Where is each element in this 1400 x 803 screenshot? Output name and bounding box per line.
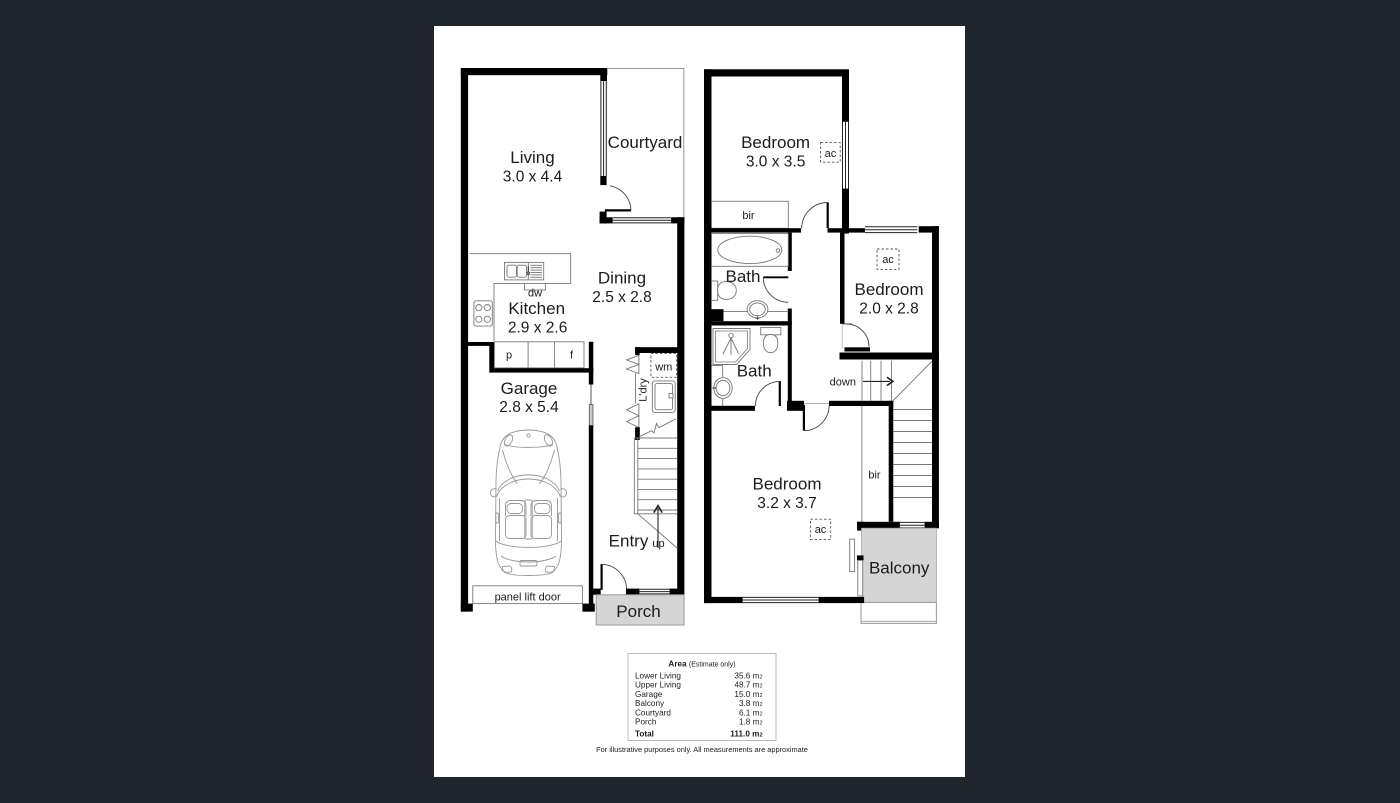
svg-text:L'dry: L'dry — [638, 378, 650, 402]
svg-text:6.1 m2: 6.1 m2 — [739, 708, 763, 717]
svg-text:Kitchen: Kitchen — [508, 299, 565, 318]
svg-text:Lower Living: Lower Living — [635, 672, 681, 681]
svg-text:15.0 m2: 15.0 m2 — [734, 690, 762, 699]
svg-text:2.8 x 5.4: 2.8 x 5.4 — [499, 399, 559, 416]
svg-text:Bedroom: Bedroom — [855, 280, 924, 299]
svg-text:bir: bir — [868, 470, 881, 482]
svg-text:panel lift door: panel lift door — [495, 592, 561, 604]
svg-text:2.5 x 2.8: 2.5 x 2.8 — [592, 289, 651, 306]
svg-text:Balcony: Balcony — [869, 559, 930, 578]
svg-text:2.9 x 2.6: 2.9 x 2.6 — [508, 320, 567, 337]
svg-text:Bedroom: Bedroom — [753, 475, 822, 494]
svg-text:Upper Living: Upper Living — [635, 681, 681, 690]
svg-text:Dining: Dining — [598, 269, 646, 288]
svg-text:For illustrative purposes only: For illustrative purposes only. All meas… — [596, 745, 808, 754]
svg-text:Garage: Garage — [501, 379, 558, 398]
svg-text:48.7 m2: 48.7 m2 — [734, 681, 762, 690]
svg-text:Balcony: Balcony — [635, 699, 665, 708]
svg-text:Garage: Garage — [635, 690, 663, 699]
svg-text:Courtyard: Courtyard — [608, 133, 683, 152]
svg-text:down: down — [830, 376, 856, 388]
svg-text:3.2 x 3.7: 3.2 x 3.7 — [757, 495, 816, 512]
svg-text:Total: Total — [635, 729, 654, 738]
svg-text:dw: dw — [528, 288, 542, 300]
svg-text:Courtyard: Courtyard — [635, 708, 671, 717]
svg-text:3.8 m2: 3.8 m2 — [739, 699, 763, 708]
svg-text:p: p — [506, 350, 512, 362]
svg-text:Porch: Porch — [635, 718, 657, 727]
svg-text:111.0 m2: 111.0 m2 — [730, 729, 762, 738]
svg-text:Living: Living — [510, 148, 554, 167]
svg-text:Entry: Entry — [609, 532, 649, 551]
svg-text:3.0 x 4.4: 3.0 x 4.4 — [503, 169, 563, 186]
svg-text:3.0 x 3.5: 3.0 x 3.5 — [746, 154, 805, 171]
svg-text:35.6 m2: 35.6 m2 — [734, 672, 762, 681]
svg-text:Area (Estimate only): Area (Estimate only) — [668, 660, 735, 669]
svg-text:Bath: Bath — [726, 267, 761, 286]
svg-text:ac: ac — [815, 524, 827, 536]
svg-text:1.8 m2: 1.8 m2 — [739, 718, 763, 727]
svg-text:ac: ac — [825, 148, 837, 160]
svg-text:2.0 x 2.8: 2.0 x 2.8 — [859, 301, 918, 318]
svg-text:Bedroom: Bedroom — [741, 133, 810, 152]
svg-text:bir: bir — [742, 210, 755, 222]
svg-text:Bath: Bath — [737, 362, 772, 381]
svg-text:up: up — [652, 538, 664, 550]
svg-text:wm: wm — [654, 362, 672, 374]
svg-text:ac: ac — [882, 254, 894, 266]
svg-text:Porch: Porch — [616, 602, 660, 621]
